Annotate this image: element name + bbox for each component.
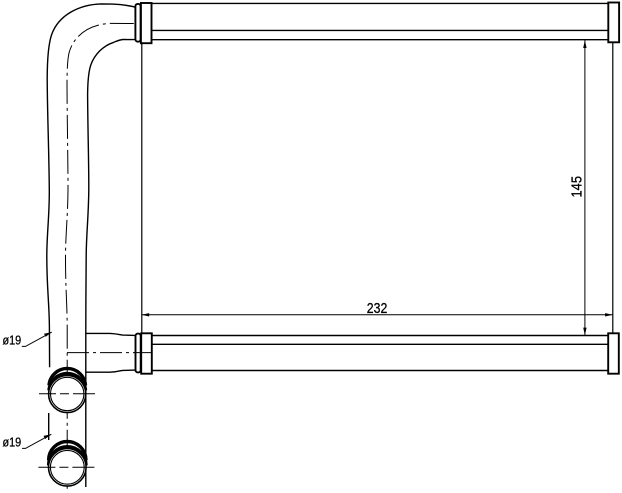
- svg-text:232: 232: [367, 301, 388, 317]
- svg-text:ø19: ø19: [3, 435, 22, 450]
- svg-text:ø19: ø19: [3, 333, 22, 348]
- svg-text:145: 145: [570, 176, 586, 198]
